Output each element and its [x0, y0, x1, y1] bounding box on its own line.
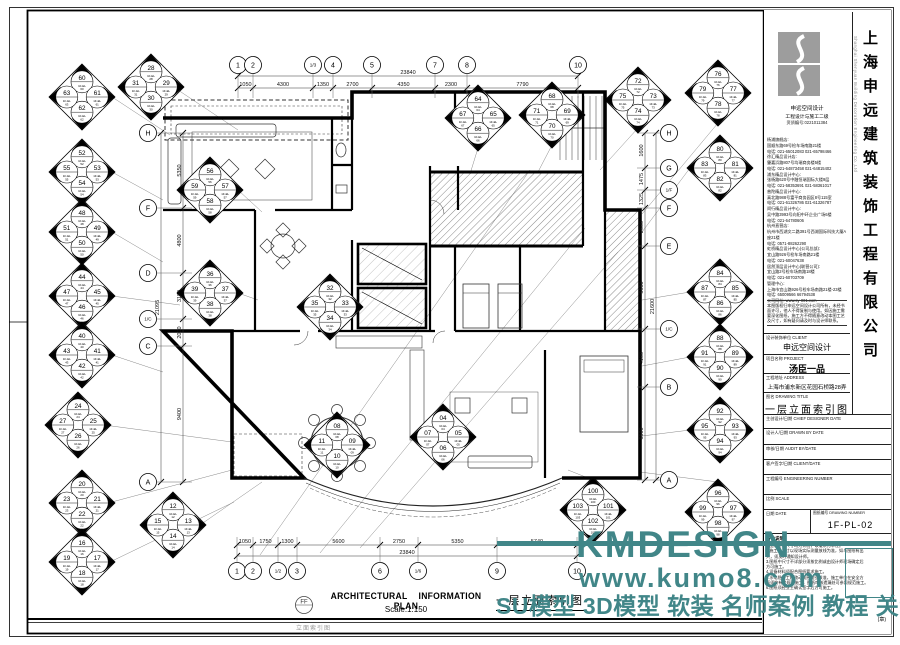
diamond-sheet-ref-num: 94 [718, 451, 722, 455]
footer-detail-circle: FF [296, 597, 313, 614]
diamond-sheet-ref-num: 06 [441, 458, 445, 462]
hatch-areas [358, 172, 640, 331]
diamond-index-number: 57 [222, 183, 230, 190]
diamond-index-number: 51 [63, 225, 71, 232]
index-diamond: 881F-EL88891F-EL89901F-EL90911F-EL91 [687, 324, 753, 390]
grid-bubble: H [140, 125, 193, 142]
index-diamond: 521F-EL52531F-EL53541F-EL54551F-EL55 [49, 139, 115, 205]
grid-bubble: D [140, 265, 193, 282]
diamond-sheet-ref-num: 83 [703, 173, 707, 177]
company-name-english: Shanghai Shenyuan Building Decoration En… [853, 36, 858, 366]
diamond-index-number: 93 [732, 423, 740, 430]
diamond-sheet-ref-num: 78 [716, 114, 720, 118]
certification-line: 工程设计与施工二级 [766, 113, 848, 120]
diamond-sheet-ref-num: 27 [61, 430, 65, 434]
grid-bubble-label: 9 [495, 569, 499, 576]
dimension-label: 4100 [639, 352, 645, 364]
dimension-label: 21095 [155, 300, 161, 315]
index-diamond: 281F-EL28291F-EL29301F-EL30311F-EL31 [118, 54, 184, 120]
index-diamond: 761F-EL76771F-EL77781F-EL78791F-EL79 [685, 60, 751, 126]
diamond-sheet-ref-num: 61 [96, 102, 100, 106]
diamond-sheet-ref-num: 35 [313, 312, 317, 316]
diamond-index-number: 21 [94, 496, 102, 503]
dimension-label: 23840 [400, 70, 415, 76]
grid-bubble: 4 [325, 57, 342, 99]
drawing-number-value: 1F-PL-02 [810, 520, 891, 530]
diamond-index-number: 13 [185, 518, 193, 525]
diamond-index-number: 12 [169, 503, 177, 510]
diamond-index-number: 91 [701, 350, 709, 357]
diamond-index-number: 73 [650, 93, 658, 100]
diamond-sheet-ref-num: 04 [441, 427, 445, 431]
dimension-label: 9400 [177, 408, 183, 420]
diamond-sheet-ref-num: 75 [621, 105, 625, 109]
diamond-sheet-ref-num: 26 [76, 446, 80, 450]
diamond-sheet-ref-num: 90 [718, 378, 722, 382]
client-sign-row: 客户签字/日期 CLIENT/DATE [764, 459, 891, 475]
diamond-index-number: 84 [716, 270, 724, 277]
dimension-label: 2750 [393, 539, 405, 545]
diamond-index-number: 29 [163, 80, 171, 87]
diamond-sheet-ref-num: 51 [65, 237, 69, 241]
grid-bubble-label: 1/6 [415, 569, 422, 574]
diamond-index-number: 86 [716, 300, 724, 307]
diamond-index-number: 08 [333, 423, 341, 430]
diamond-sheet-ref-num: 64 [476, 108, 480, 112]
dimension-label: 2300 [445, 82, 457, 88]
watermark-brand: KMDESIGN [576, 524, 791, 566]
dimension-label: 7790 [516, 82, 528, 88]
grid-bubble: 1/C [637, 321, 678, 338]
diamond-sheet-ref-num: 57 [224, 195, 228, 199]
dimension-label: 1300 [281, 539, 293, 545]
diamond-sheet-ref-num: 11 [320, 450, 323, 454]
diamond-sheet-ref-num: 81 [734, 173, 738, 177]
diamond-index-number: 10 [333, 453, 341, 460]
client-row: 设计装饰单位 CLIENT 申远空间设计 [764, 333, 850, 355]
diamond-index-number: 76 [714, 71, 722, 78]
diamond-sheet-ref-num: 49 [96, 237, 100, 241]
balcony-curve [304, 478, 562, 517]
diamond-sheet-ref-num: 41 [96, 360, 100, 364]
diamond-index-number: 17 [94, 555, 102, 562]
diamond-sheet-ref-num: 36 [208, 283, 212, 287]
company-name-vertical: 上海申远建筑装饰工程有限公司 [859, 30, 880, 422]
diamond-sheet-ref-num: 67 [461, 123, 465, 127]
grid-bubble-label: 1/2 [275, 569, 282, 574]
diamond-sheet-ref-num: 103 [575, 515, 580, 519]
address-label: 工程地址 ADDRESS [766, 375, 804, 381]
grid-bubble-label: 2 [251, 569, 255, 576]
project-row: 项目名称 PROJECT 汤臣一品 [764, 354, 850, 374]
drawing-title-row: 图名 DRAWING TITLE 一层立面索引图 [764, 392, 850, 415]
grid-bubble-label: 2 [251, 63, 255, 70]
diamond-index-number: 14 [169, 533, 177, 540]
diamond-index-number: 64 [474, 96, 482, 103]
scale-label: 比例 SCALE [766, 496, 789, 502]
diamond-index-number: 06 [439, 445, 447, 452]
diamond-index-number: 26 [74, 433, 82, 440]
diamond-sheet-ref-num: 77 [732, 98, 736, 102]
diamond-sheet-ref-num: 85 [734, 297, 738, 301]
diamond-index-number: 43 [63, 348, 71, 355]
dimension-label: 1475 [639, 173, 645, 185]
dimension-label: 1750 [259, 539, 271, 545]
diamond-sheet-ref-num: 18 [80, 583, 84, 587]
dimension-label: 1600 [639, 144, 645, 156]
diamond-index-number: 59 [191, 183, 199, 190]
diamond-sheet-ref-num: 58 [208, 211, 212, 215]
diamond-index-number: 103 [573, 503, 584, 510]
grid-bubble-label: E [667, 244, 672, 251]
grid-bubble-label: F [146, 206, 150, 213]
dimension-label: 21600 [650, 299, 656, 314]
grid-bubble-label: 1 [235, 569, 239, 576]
diamond-index-number: 22 [78, 511, 86, 518]
dimension-label: 1050 [239, 539, 251, 545]
grid-bubble-label: A [667, 478, 672, 485]
index-diamond: 601F-EL60611F-EL61621F-EL62631F-EL63 [49, 64, 115, 130]
diamond-sheet-ref-num: 15 [156, 530, 160, 534]
diamond-index-number: 65 [490, 111, 498, 118]
diamond-index-number: 89 [732, 350, 740, 357]
diamond-index-number: 44 [78, 274, 86, 281]
index-diamond: 241F-EL24251F-EL25261F-EL26271F-EL27 [45, 392, 111, 458]
diamond-sheet-ref-num: 87 [703, 297, 707, 301]
diamond-index-number: 75 [619, 93, 627, 100]
index-diamond: 561F-EL56571F-EL57581F-EL58591F-EL59 [177, 157, 243, 223]
diamond-sheet-ref-num: 09 [351, 450, 355, 454]
diamond-index-number: 28 [147, 65, 155, 72]
diamond-sheet-ref-num: 96 [716, 502, 720, 506]
address-value: 上海市浦东新区花园石桥路28弄 [764, 383, 850, 391]
dimension-label: 23840 [399, 550, 414, 556]
diamond-sheet-ref-num: 40 [80, 345, 84, 349]
certification-number: 资质编号:0221011384 [766, 120, 848, 126]
grid-bubble: 1/C [140, 311, 193, 328]
diamond-index-number: 68 [548, 93, 556, 100]
diamond-index-number: 30 [147, 95, 155, 102]
diamond-index-number: 46 [78, 304, 86, 311]
diamond-sheet-ref-num: 08 [335, 435, 339, 439]
copyright-disclaimer: 本图版权归申远空间设计公司所有，未经书面许可，他人不得复制与使用。如因施工需要深… [767, 300, 847, 326]
grid-bubble: 6 [372, 537, 389, 580]
dimension-label: 2600 [639, 221, 645, 233]
diamond-sheet-ref-num: 56 [208, 180, 212, 184]
diamond-index-number: 27 [59, 418, 67, 425]
diamond-sheet-ref-num: 101 [606, 515, 611, 519]
diamond-sheet-ref-num: 22 [80, 524, 84, 528]
diamond-sheet-ref-num: 29 [165, 92, 169, 96]
diamond-sheet-ref-num: 99 [701, 517, 705, 521]
index-diamond: 361F-EL36371F-EL37381F-EL38391F-EL39 [177, 260, 243, 326]
diamond-index-number: 66 [474, 126, 482, 133]
diamond-sheet-ref-num: 53 [96, 177, 100, 181]
diamond-index-number: 87 [701, 285, 709, 292]
engineering-number-label: 工程编号 ENGINEERING NUMBER [766, 476, 833, 482]
dimension-label: 5600 [332, 539, 344, 545]
index-diamond: 841F-EL84851F-EL85861F-EL86871F-EL87 [687, 259, 753, 325]
drawn-by-label: 设计人/日期 DRAWN BY DATE [766, 430, 824, 436]
drawn-by-row: 设计人/日期 DRAWN BY DATE [764, 428, 891, 445]
grid-bubble: E [637, 238, 678, 255]
dimension-label: 6500 [639, 427, 645, 439]
client-label: 设计装饰单位 CLIENT [766, 335, 807, 341]
diamond-index-number: 101 [603, 503, 614, 510]
diamond-index-number: 100 [588, 488, 599, 495]
diamond-sheet-ref-num: 80 [718, 158, 722, 162]
brand-caption: 申远空间设计 [766, 104, 848, 112]
grid-bubble-label: 1/C [665, 327, 673, 332]
diamond-index-number: 97 [730, 505, 738, 512]
diamond-sheet-ref-num: 76 [716, 83, 720, 87]
grid-bubble-label: 3 [295, 569, 299, 576]
client-value: 申远空间设计 [764, 342, 850, 353]
diamond-index-number: 34 [326, 315, 334, 322]
diamond-index-number: 18 [78, 570, 86, 577]
drawing-title-label: 图名 DRAWING TITLE [766, 394, 808, 400]
chief-designer-row: 主创设计/日期 CHIEF DESIGNER DATE [764, 414, 891, 429]
index-diamond: 161F-EL16171F-EL17181F-EL18191F-EL19 [49, 529, 115, 595]
diamond-sheet-ref-num: 88 [718, 347, 722, 351]
diamond-index-number: 31 [132, 80, 140, 87]
diamond-index-number: 71 [533, 108, 541, 115]
diamond-sheet-ref-num: 66 [476, 139, 480, 143]
grid-bubble-label: 10 [574, 63, 582, 70]
grid-bubble-label: 1/3 [310, 63, 317, 68]
diamond-index-number: 09 [349, 438, 357, 445]
grid-bubble-label: F [667, 206, 671, 213]
date-label: 日期 DATE [766, 511, 786, 517]
grid-bubble-label: 8 [465, 63, 469, 70]
diamond-index-number: 74 [634, 108, 642, 115]
diamond-index-number: 45 [94, 289, 102, 296]
dimension-label: 4350 [397, 82, 409, 88]
diamond-index-number: 60 [78, 75, 86, 82]
index-diamond: 081F-EL08091F-EL09101F-EL10111F-EL11 [304, 412, 370, 478]
diamond-index-number: 24 [74, 403, 82, 410]
grid-bubble-label: D [145, 271, 150, 278]
diamond-sheet-ref-num: 50 [80, 253, 84, 257]
diamond-index-number: 94 [716, 438, 724, 445]
grid-bubble-label: H [666, 131, 671, 138]
diamond-sheet-ref-num: 73 [652, 105, 656, 109]
diamond-sheet-ref-num: 74 [636, 121, 640, 125]
diamond-index-number: 90 [716, 365, 724, 372]
grid-bubble-label: 1/F [666, 188, 673, 193]
diamond-index-number: 05 [455, 430, 463, 437]
diamond-sheet-ref-num: 91 [703, 362, 707, 366]
grid-bubble-label: 6 [378, 569, 382, 576]
diamond-index-number: 78 [714, 101, 722, 108]
diamond-sheet-ref-num: 95 [703, 435, 707, 439]
diamond-sheet-ref-num: 44 [80, 286, 84, 290]
diamond-index-number: 70 [548, 123, 556, 130]
diamond-sheet-ref-num: 45 [96, 301, 100, 305]
diamond-index-number: 58 [206, 198, 214, 205]
diamond-index-number: 38 [206, 301, 214, 308]
margin-note: 立面索引图 [296, 623, 331, 632]
diamond-index-number: 53 [94, 165, 102, 172]
diamond-sheet-ref-num: 47 [65, 301, 69, 305]
scale-row: 比例 SCALE [764, 494, 891, 510]
detail-circle-label: FF [300, 600, 308, 606]
diamond-sheet-ref-num: 72 [636, 90, 640, 94]
grid-bubble-label: 1 [236, 63, 240, 70]
diamond-index-number: 69 [564, 108, 572, 115]
diamond-sheet-ref-num: 05 [457, 442, 461, 446]
diamond-sheet-ref-num: 55 [65, 177, 69, 181]
diamond-index-number: 52 [78, 150, 86, 157]
diamond-index-number: 79 [699, 86, 707, 93]
diamond-sheet-ref-num: 86 [718, 313, 722, 317]
diamond-sheet-ref-num: 28 [149, 77, 153, 81]
diamond-index-number: 23 [63, 496, 71, 503]
diamond-sheet-ref-num: 82 [718, 189, 722, 193]
dimension-label: 1050 [239, 82, 251, 88]
diamond-index-number: 04 [439, 415, 447, 422]
diamond-index-number: 19 [63, 555, 71, 562]
diamond-index-number: 40 [78, 333, 86, 340]
dimension-label: 4300 [277, 82, 289, 88]
diamond-index-number: 49 [94, 225, 102, 232]
dimension-label: 5650 [639, 281, 645, 293]
diamond-sheet-ref-num: 63 [65, 102, 69, 106]
diamond-sheet-ref-num: 65 [492, 123, 496, 127]
dimension-label: 2700 [346, 82, 358, 88]
diamond-sheet-ref-num: 97 [732, 517, 736, 521]
diamond-index-number: 11 [319, 438, 326, 445]
grid-bubble: A [140, 474, 193, 491]
company-contacts: 杨浦旗舰店:国顺东路69号检车场南路21楼电话: 021-65012083 02… [767, 137, 849, 304]
diamond-sheet-ref-num: 93 [734, 435, 738, 439]
index-diamond: 041F-EL04051F-EL05061F-EL06071F-EL07 [410, 404, 476, 470]
address-row: 工程地址 ADDRESS 上海市浦东新区花园石桥路28弄 [764, 373, 850, 393]
diamond-sheet-ref-num: 52 [80, 162, 84, 166]
diamond-sheet-ref-num: 12 [171, 515, 175, 519]
grid-bubble-label: 4 [331, 63, 335, 70]
diamond-index-number: 39 [191, 286, 199, 293]
diamond-index-number: 80 [716, 146, 724, 153]
diamond-index-number: 82 [716, 176, 724, 183]
diamond-sheet-ref-num: 54 [80, 193, 84, 197]
diamond-sheet-ref-num: 21 [96, 508, 100, 512]
diamond-index-number: 16 [78, 540, 86, 547]
diamond-sheet-ref-num: 10 [335, 466, 339, 470]
diamond-index-number: 77 [730, 86, 738, 93]
diamond-sheet-ref-num: 48 [80, 222, 84, 226]
diamond-sheet-ref-num: 43 [65, 360, 69, 364]
audit-label: 审核/日期 AUDIT BY/DATE [766, 446, 816, 452]
dimension-label: 4800 [177, 234, 183, 246]
grid-bubble-label: 1/C [144, 317, 152, 322]
diamond-index-number: 95 [701, 423, 709, 430]
index-diamond: 441F-EL44451F-EL45461F-EL46471F-EL47 [49, 263, 115, 329]
diamond-index-number: 99 [699, 505, 707, 512]
diamond-sheet-ref-num: 31 [134, 92, 138, 96]
watermark-slogan: SU模型 3D模型 软装 名师案例 教程 关注酷模吧 [496, 587, 900, 621]
diamond-sheet-ref-num: 24 [76, 415, 80, 419]
diamond-index-number: 37 [222, 286, 230, 293]
diamond-index-number: 50 [78, 240, 86, 247]
diamond-sheet-ref-num: 70 [550, 136, 554, 140]
diamond-sheet-ref-num: 59 [193, 195, 197, 199]
diamond-sheet-ref-num: 42 [80, 376, 84, 380]
diamond-index-number: 15 [154, 518, 162, 525]
diamond-sheet-ref-num: 16 [80, 552, 84, 556]
diamond-sheet-ref-num: 92 [718, 420, 722, 424]
diamond-index-number: 35 [311, 300, 319, 307]
grid-bubble: 1 [230, 57, 247, 99]
diamond-index-number: 72 [634, 78, 642, 85]
diamond-index-number: 92 [716, 408, 724, 415]
diamond-sheet-ref-num: 37 [224, 298, 228, 302]
diamond-sheet-ref-num: 33 [344, 312, 348, 316]
dimension-label: 1350 [317, 82, 329, 88]
diamond-index-number: 63 [63, 90, 71, 97]
index-diamond: 721F-EL72731F-EL73741F-EL74751F-EL75 [605, 67, 671, 133]
diamond-sheet-ref-num: 60 [80, 87, 84, 91]
grid-bubble: F [140, 200, 193, 217]
diamond-index-number: 67 [459, 111, 467, 118]
drawing-number-label: 图纸编号 DRAWING NUMBER [813, 511, 865, 516]
grid-bubble-label: 5 [370, 63, 374, 70]
diamond-index-number: 88 [716, 335, 724, 342]
diamond-index-number: 20 [78, 481, 86, 488]
grid-bubble-label: 7 [433, 63, 437, 70]
diamond-sheet-ref-num: 30 [149, 108, 153, 112]
diamond-sheet-ref-num: 19 [65, 567, 69, 571]
diamond-index-number: 96 [714, 490, 722, 497]
diamond-index-number: 48 [78, 210, 86, 217]
dimension-label: 5350 [451, 539, 463, 545]
diamond-sheet-ref-num: 46 [80, 317, 84, 321]
diamond-index-number: 32 [326, 285, 334, 292]
diamond-sheet-ref-num: 62 [80, 118, 84, 122]
diamond-sheet-ref-num: 20 [80, 493, 84, 497]
diamond-index-number: 54 [78, 180, 86, 187]
text-line: 杭州市西湖文二路391号西湖国际科技大厦A座21楼 [767, 229, 849, 241]
grid-bubble-label: H [145, 131, 150, 138]
diamond-sheet-ref-num: 32 [328, 297, 332, 301]
diamond-index-number: 55 [63, 165, 71, 172]
diamond-sheet-ref-num: 71 [535, 120, 539, 124]
diamond-sheet-ref-num: 69 [566, 120, 570, 124]
diamond-index-number: 07 [424, 430, 432, 437]
dimension-label: 2000 [177, 326, 183, 338]
diamond-index-number: 41 [94, 348, 102, 355]
diamond-index-number: 56 [206, 168, 214, 175]
index-diamond: 201F-EL20211F-EL21221F-EL22231F-EL23 [49, 470, 115, 536]
grid-bubble: 2 [245, 57, 262, 99]
diamond-sheet-ref-num: 23 [65, 508, 69, 512]
diamond-sheet-ref-num: 14 [171, 546, 175, 550]
diamond-sheet-ref-num: 25 [92, 430, 96, 434]
diamond-sheet-ref-num: 89 [734, 362, 738, 366]
grid-bubble-label: A [146, 480, 151, 487]
diamond-sheet-ref-num: 13 [187, 530, 191, 534]
index-diamond: 801F-EL80811F-EL81821F-EL82831F-EL83 [687, 135, 753, 201]
client-sign-label: 客户签字/日期 CLIENT/DATE [766, 461, 820, 467]
diamond-index-number: 33 [342, 300, 350, 307]
diamond-index-number: 36 [206, 271, 214, 278]
grid-bubble: B [637, 379, 678, 396]
diamond-index-number: 81 [732, 161, 740, 168]
diamond-sheet-ref-num: 79 [701, 98, 705, 102]
diamond-index-number: 25 [90, 418, 98, 425]
diamond-index-number: 85 [732, 285, 740, 292]
grid-bubble-label: B [667, 385, 672, 392]
